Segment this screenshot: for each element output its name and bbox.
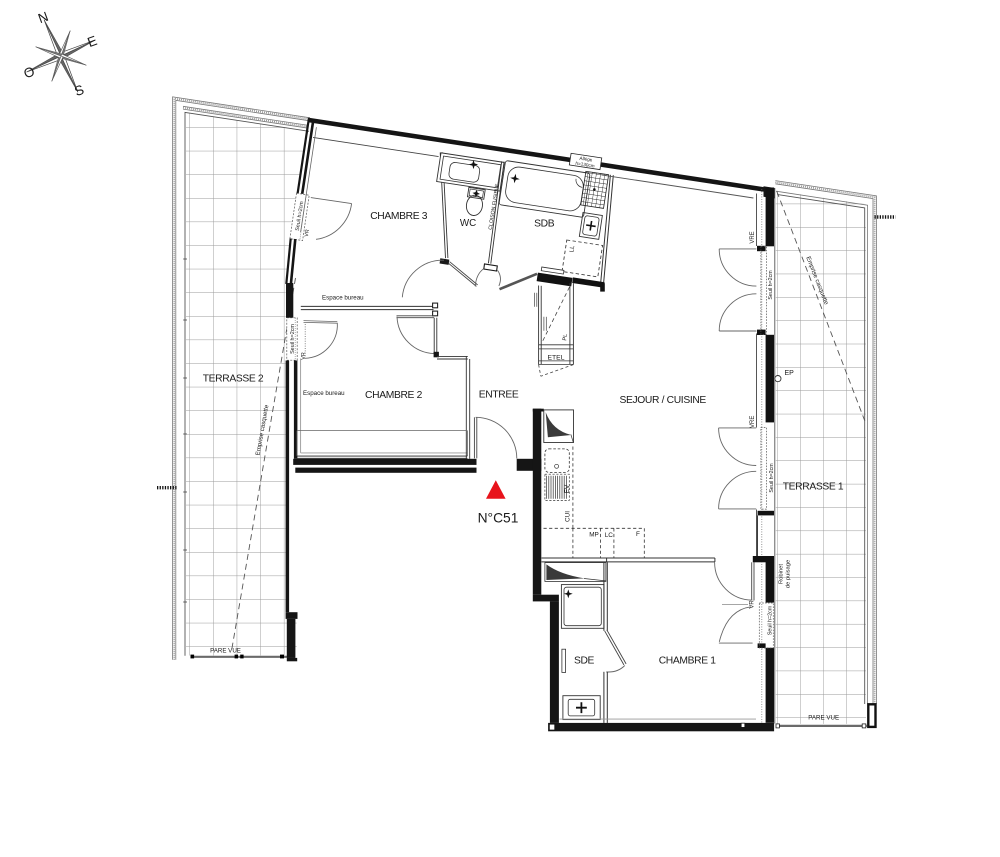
svg-text:TERRASSE 2: TERRASSE 2 [203,373,264,384]
svg-text:CHAMBRE 2: CHAMBRE 2 [365,390,423,401]
svg-text:MP: MP [589,531,599,538]
svg-text:WC: WC [460,218,476,229]
svg-text:CHAMBRE 3: CHAMBRE 3 [370,211,428,222]
svg-text:TERRASSE 1: TERRASSE 1 [783,481,844,492]
svg-text:N°C51: N°C51 [478,511,519,526]
svg-text:Seuil h=2cm: Seuil h=2cm [769,463,775,493]
svg-text:ENTREE: ENTREE [479,389,519,400]
svg-text:N: N [36,9,50,26]
svg-text:EP: EP [785,370,795,377]
svg-text:Espace bureau: Espace bureau [322,294,364,301]
svg-text:PARE VUE: PARE VUE [210,648,241,655]
svg-text:VRE: VRE [750,416,756,428]
svg-text:PL: PL [562,333,569,341]
svg-text:SEJOUR / CUISINE: SEJOUR / CUISINE [619,395,706,406]
svg-text:O: O [22,64,37,82]
svg-text:VR: VR [304,229,311,237]
svg-text:Seuil h=2cm: Seuil h=2cm [768,605,774,635]
svg-text:SDB: SDB [534,218,555,229]
svg-text:Espace bureau: Espace bureau [303,390,345,397]
svg-text:CHAMBRE 1: CHAMBRE 1 [659,655,717,666]
svg-text:CLOISON FUSIBLE: CLOISON FUSIBLE [488,183,501,230]
svg-text:CUI: CUI [565,511,572,522]
svg-text:VR: VR [750,600,756,609]
svg-text:Seuil h=2cm: Seuil h=2cm [768,270,774,300]
svg-text:de puisage: de puisage [785,560,791,588]
svg-text:S: S [72,82,86,99]
svg-text:PARE VUE: PARE VUE [808,715,839,722]
svg-text:E: E [85,33,99,50]
svg-text:VRE: VRE [750,231,756,243]
svg-text:LC: LC [605,532,614,539]
svg-text:ETEL: ETEL [548,354,565,361]
svg-text:SDE: SDE [574,656,595,667]
svg-text:Seuil h=2cm: Seuil h=2cm [290,324,296,354]
svg-text:EV: EV [564,484,571,493]
svg-text:F: F [636,531,640,538]
svg-text:Robinet: Robinet [778,564,784,584]
svg-text:LL: LL [569,245,576,253]
